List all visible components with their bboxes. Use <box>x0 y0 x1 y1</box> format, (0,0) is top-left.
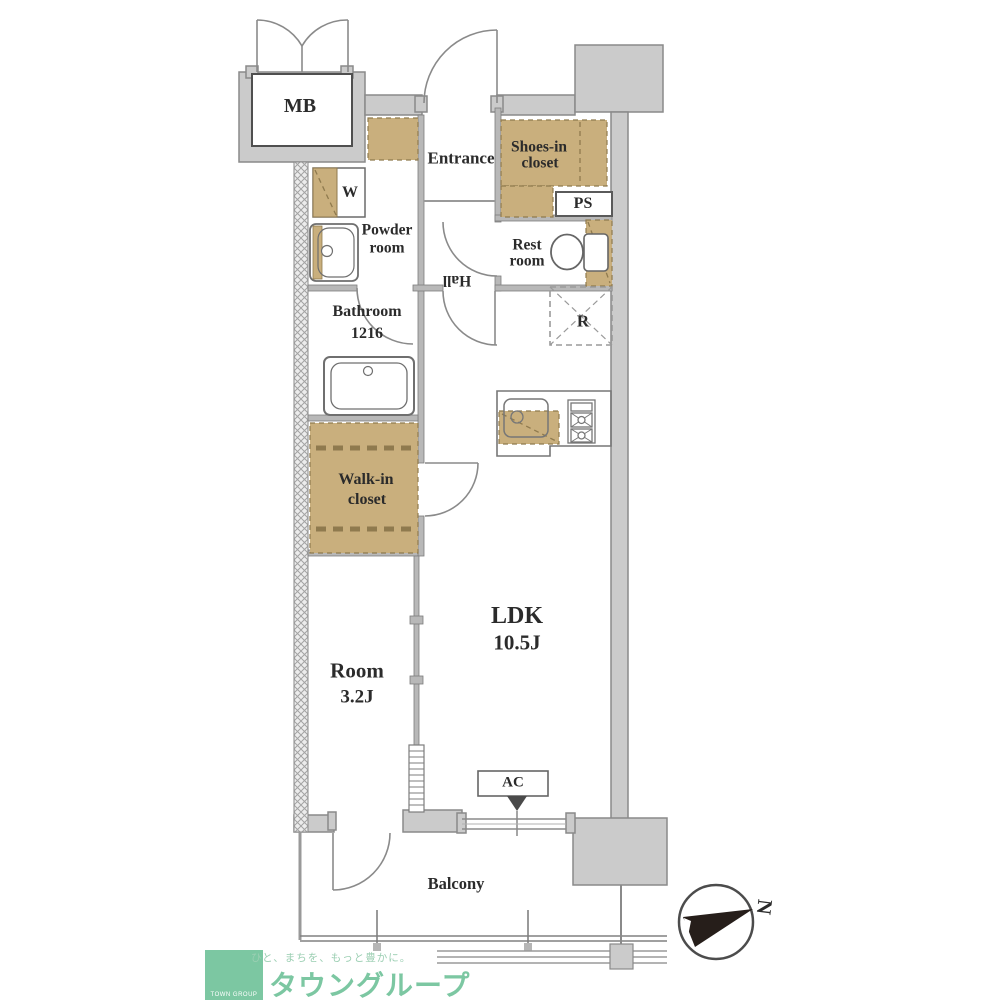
hall-ldk-door <box>443 291 497 345</box>
label-bathroom-size: 1216 <box>351 326 383 342</box>
powder-shelf-area <box>368 118 418 160</box>
restroom-door <box>443 222 497 276</box>
mb-double-doors <box>257 20 348 72</box>
ldk-window <box>462 819 566 829</box>
entrance-door <box>424 30 497 103</box>
compass <box>679 885 753 959</box>
top-right-column <box>575 45 663 112</box>
floorplan-page: MB Entrance Shoes-in closet PS Rest room… <box>0 0 999 1000</box>
wic-door <box>425 463 478 516</box>
stove <box>568 400 595 443</box>
label-ac: AC <box>502 776 524 791</box>
right-wall <box>611 112 628 820</box>
label-compass-north: N <box>753 898 776 916</box>
label-meter-box: MB <box>284 96 316 116</box>
balcony-door <box>333 833 390 890</box>
label-powder-room-line1: Powder <box>362 222 413 238</box>
label-balcony: Balcony <box>428 876 485 893</box>
label-refrigerator: R <box>577 313 589 330</box>
label-pipe-shaft: PS <box>574 196 593 212</box>
logo-brand: タウングループ <box>269 964 470 1000</box>
label-entrance: Entrance <box>427 150 494 167</box>
label-walk-in-closet-line1: Walk-in <box>338 472 393 488</box>
partition-pocket <box>409 745 424 812</box>
label-powder-room-line2: room <box>369 240 404 256</box>
bathtub <box>324 357 414 415</box>
entrance-door-jamb <box>415 96 427 112</box>
label-walk-in-closet-line2: closet <box>348 492 386 508</box>
logo-badge-text: TOWN GROUP <box>205 992 263 998</box>
label-room: Room <box>330 661 384 682</box>
toilet <box>551 234 608 271</box>
label-shoes-closet-line1: Shoes-in <box>511 139 567 155</box>
shared-wall-hatched <box>294 162 308 832</box>
label-rest-room-line2: room <box>509 253 544 269</box>
label-ldk-size: 10.5J <box>493 633 540 654</box>
label-bathroom: Bathroom <box>332 304 401 320</box>
label-hall: Hall <box>443 272 471 288</box>
label-washer: W <box>342 185 358 201</box>
bottom-right-column <box>573 818 667 885</box>
room-ldk-partition <box>414 556 419 745</box>
label-rest-room-line1: Rest <box>512 237 541 253</box>
floorplan-drawing <box>0 0 999 1000</box>
label-ldk: LDK <box>491 604 543 628</box>
label-room-size: 3.2J <box>340 688 373 707</box>
ac-drain-arrow <box>507 796 527 811</box>
vanity-sink <box>310 224 358 281</box>
logo-slogan: ひと、まちを、もっと豊かに。 <box>251 950 411 965</box>
balcony-door-jamb <box>328 812 336 830</box>
walk-in-closet-area <box>310 423 418 553</box>
label-shoes-closet-line2: closet <box>521 155 558 171</box>
